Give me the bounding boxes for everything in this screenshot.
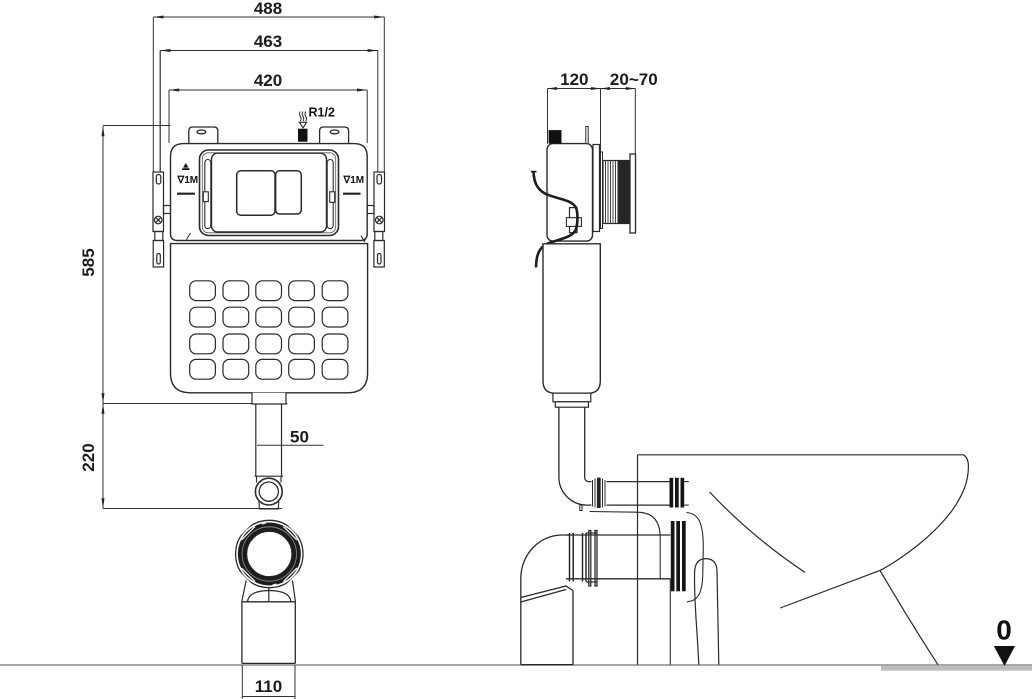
svg-text:∇1M: ∇1M <box>343 175 365 186</box>
svg-text:50: 50 <box>290 428 309 447</box>
svg-text:110: 110 <box>255 677 282 696</box>
svg-text:R1/2: R1/2 <box>309 106 335 120</box>
svg-text:0: 0 <box>996 615 1012 646</box>
svg-text:20~70: 20~70 <box>610 70 658 89</box>
svg-text:463: 463 <box>254 32 282 51</box>
svg-text:585: 585 <box>79 248 98 276</box>
svg-text:220: 220 <box>79 443 98 471</box>
svg-text:120: 120 <box>560 70 588 89</box>
svg-text:488: 488 <box>254 0 282 18</box>
svg-text:∇1M: ∇1M <box>177 175 199 186</box>
svg-text:420: 420 <box>254 71 282 90</box>
